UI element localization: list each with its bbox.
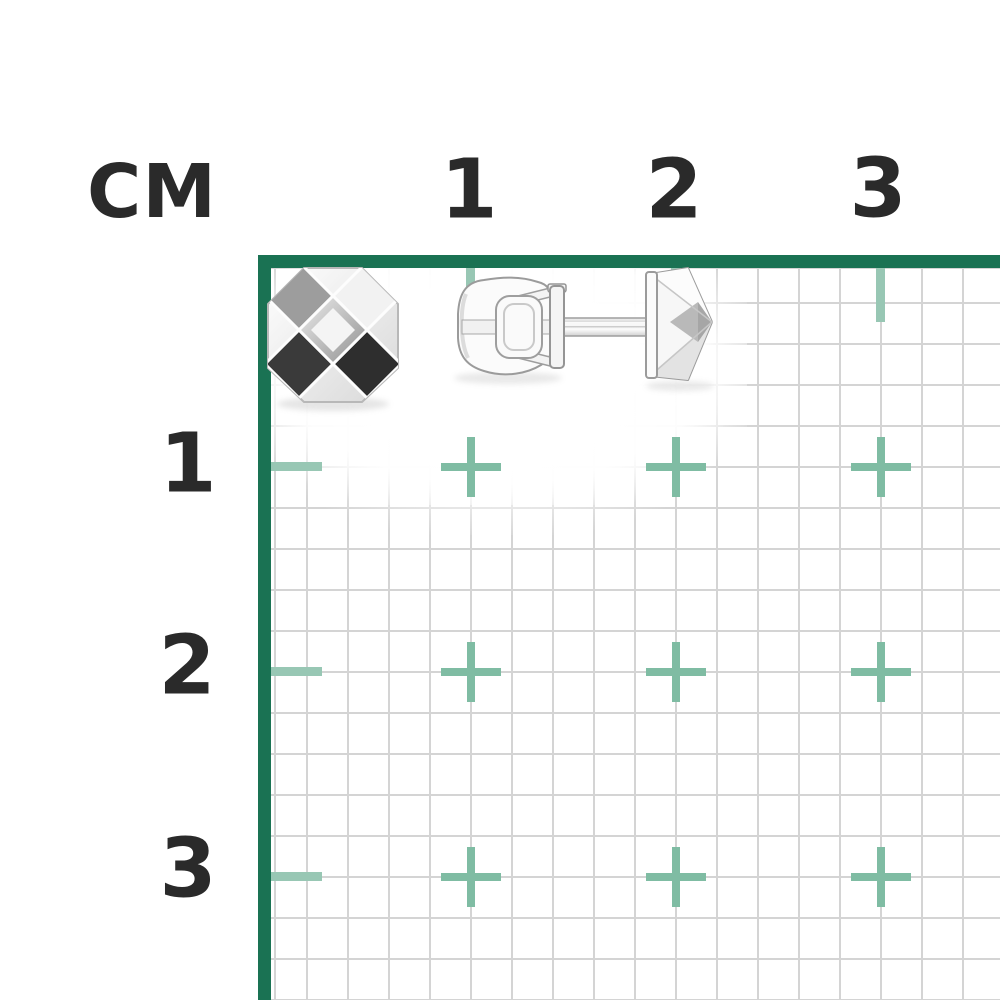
ruler-label-left-3: 3 bbox=[159, 822, 216, 917]
screw-back-clasp bbox=[458, 278, 566, 375]
cm-tick-left-3 bbox=[271, 872, 322, 881]
pyramid-head bbox=[646, 268, 712, 380]
cm-cross-icon bbox=[646, 437, 706, 497]
unit-label: СМ bbox=[87, 149, 217, 235]
cm-cross-icon bbox=[441, 642, 501, 702]
ruler-label-left-2: 2 bbox=[158, 619, 215, 714]
cm-tick-left-1 bbox=[271, 462, 322, 471]
ruler-label-top-2: 2 bbox=[645, 143, 702, 238]
cm-cross-icon bbox=[851, 847, 911, 907]
earring-post bbox=[562, 318, 654, 336]
ruler-label-top-3: 3 bbox=[849, 142, 906, 237]
cm-cross-icon bbox=[851, 642, 911, 702]
ruler-label-top-1: 1 bbox=[440, 143, 497, 238]
earrings-product-photo bbox=[250, 250, 730, 430]
photo-shadow bbox=[646, 381, 714, 391]
cm-cross-icon bbox=[646, 642, 706, 702]
stud-earring-front-view bbox=[265, 262, 401, 411]
cm-cross-icon bbox=[441, 847, 501, 907]
ruler-label-left-1: 1 bbox=[159, 417, 216, 512]
stud-earring-side-view bbox=[454, 268, 714, 391]
cm-cross-icon bbox=[851, 437, 911, 497]
cm-cross-icon bbox=[441, 437, 501, 497]
cm-tick-left-2 bbox=[271, 667, 322, 676]
cm-cross-icon bbox=[646, 847, 706, 907]
cm-tick-top-3 bbox=[876, 268, 885, 322]
jewelry-size-chart: СМ 1 2 3 1 2 3 bbox=[0, 0, 1000, 1000]
